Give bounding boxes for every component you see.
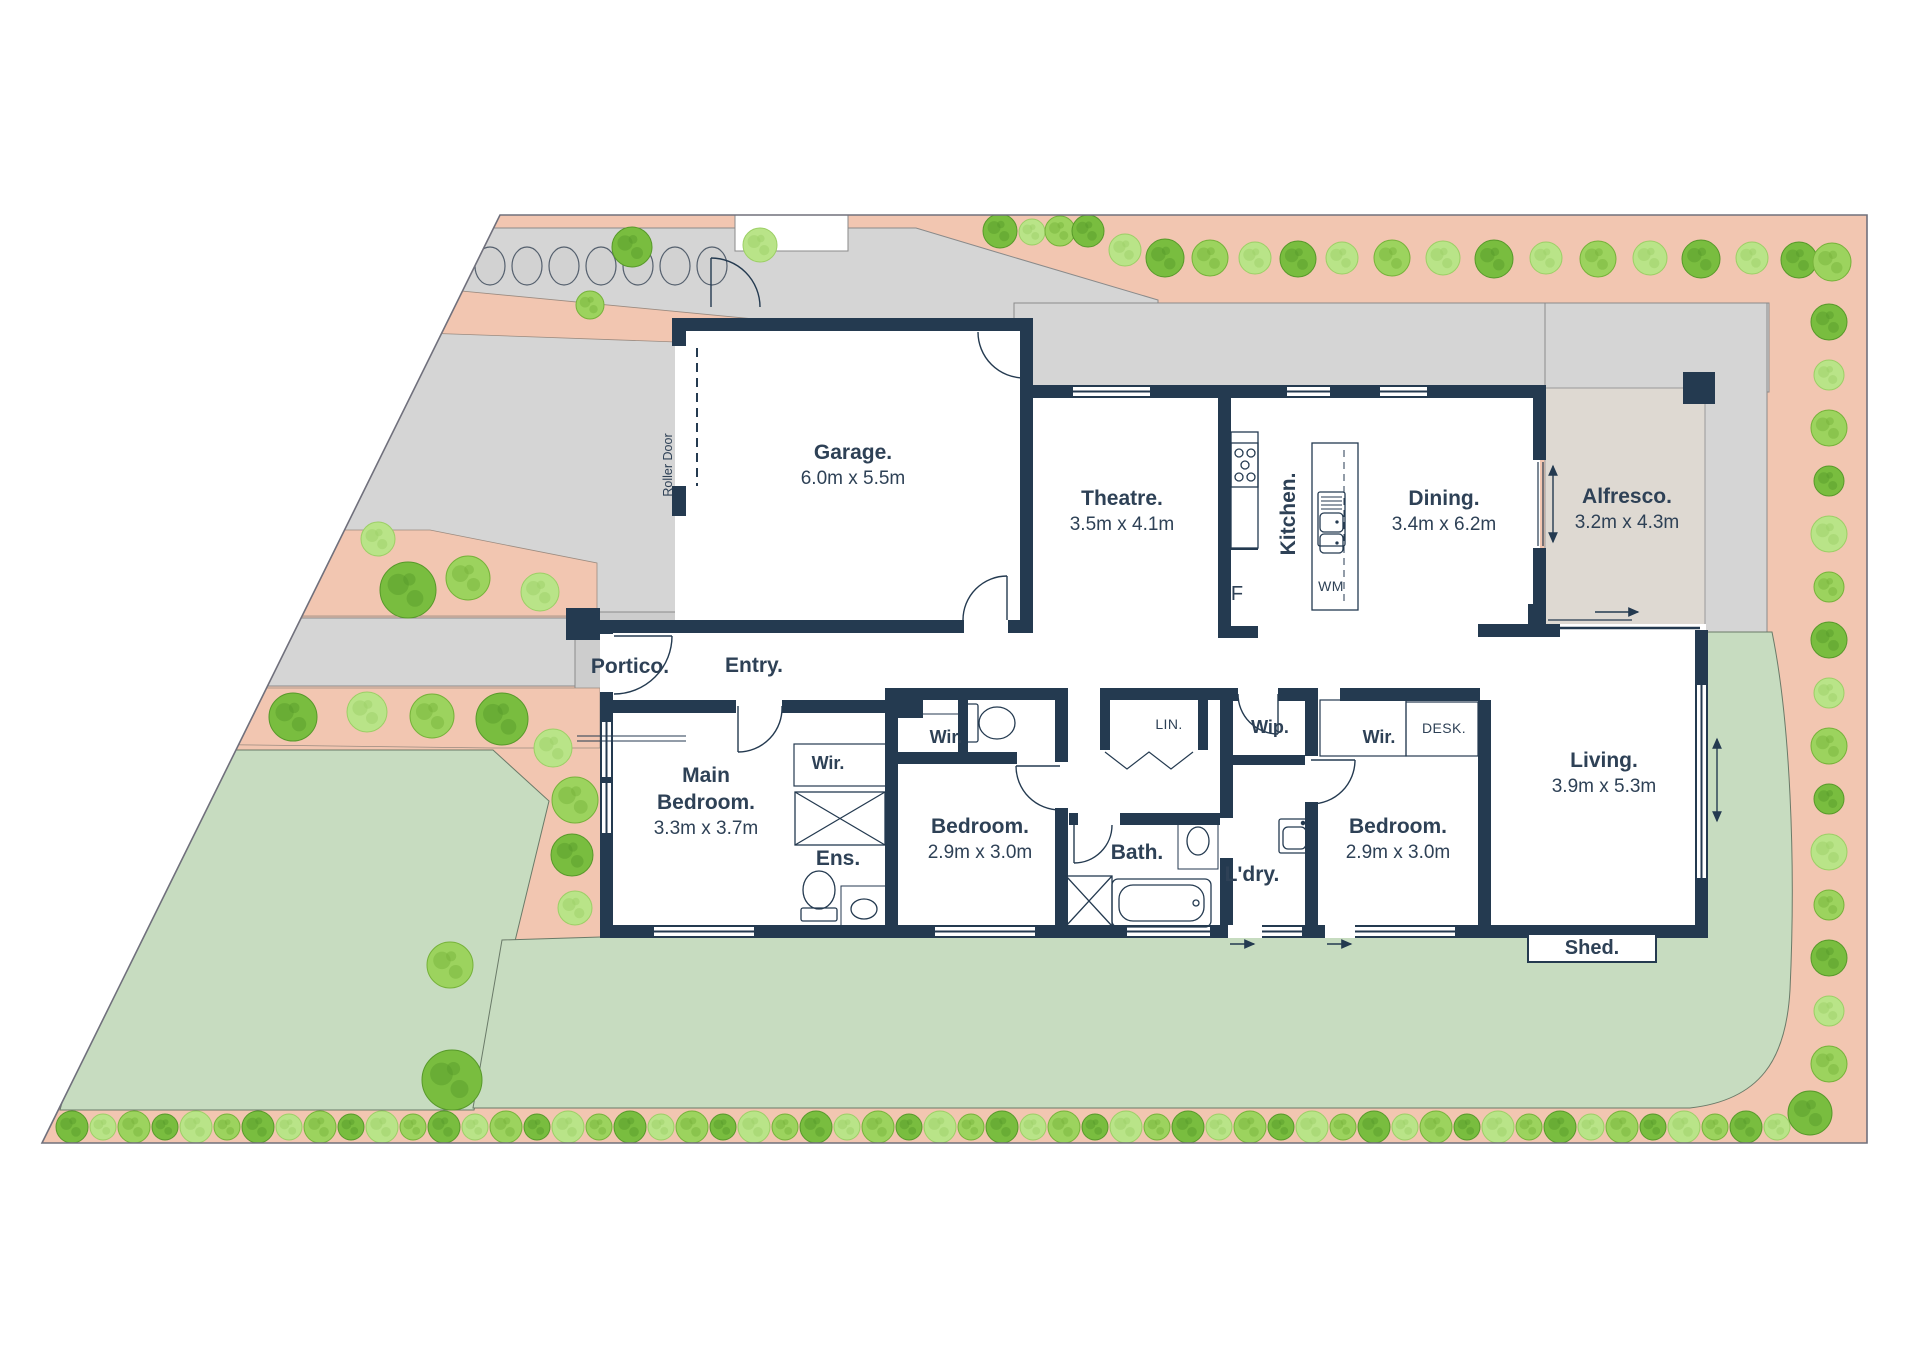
label-wip: Wip. (1251, 716, 1289, 739)
label-roller-door: Roller Door (661, 433, 675, 496)
label-bath: Bath. (1111, 840, 1164, 867)
label-living: Living. 3.9m x 5.3m (1552, 748, 1657, 799)
label-entry: Entry. (725, 653, 783, 680)
label-theatre: Theatre. 3.5m x 4.1m (1070, 486, 1175, 537)
label-portico: Portico. (591, 654, 669, 681)
label-wir-main: Wir. (812, 752, 845, 775)
label-desk: DESK. (1422, 720, 1466, 738)
label-wir-bed3: Wir. (1363, 726, 1396, 749)
label-fridge: F (1231, 582, 1243, 608)
floor-plan: Garage. 6.0m x 5.5m Roller Door Theatre.… (0, 0, 1920, 1357)
label-main-bedroom: Main Bedroom. 3.3m x 3.7m (654, 763, 759, 841)
label-alfresco: Alfresco. 3.2m x 4.3m (1575, 484, 1680, 535)
label-shed: Shed. (1565, 937, 1619, 960)
label-garage: Garage. 6.0m x 5.5m (801, 440, 906, 491)
label-ldry: L'dry. (1225, 862, 1280, 889)
label-lin: LIN. (1155, 716, 1182, 734)
label-wm: WM (1318, 578, 1344, 596)
label-ens: Ens. (816, 846, 860, 873)
label-wir-bed2: Wir. (930, 726, 963, 749)
label-dining: Dining. 3.4m x 6.2m (1392, 486, 1497, 537)
shed: Shed. (1527, 933, 1657, 963)
label-bedroom3: Bedroom. 2.9m x 3.0m (1346, 814, 1451, 865)
label-bedroom2: Bedroom. 2.9m x 3.0m (928, 814, 1033, 865)
label-kitchen: Kitchen. (1277, 473, 1301, 556)
labels-layer: Garage. 6.0m x 5.5m Roller Door Theatre.… (0, 0, 1920, 1357)
